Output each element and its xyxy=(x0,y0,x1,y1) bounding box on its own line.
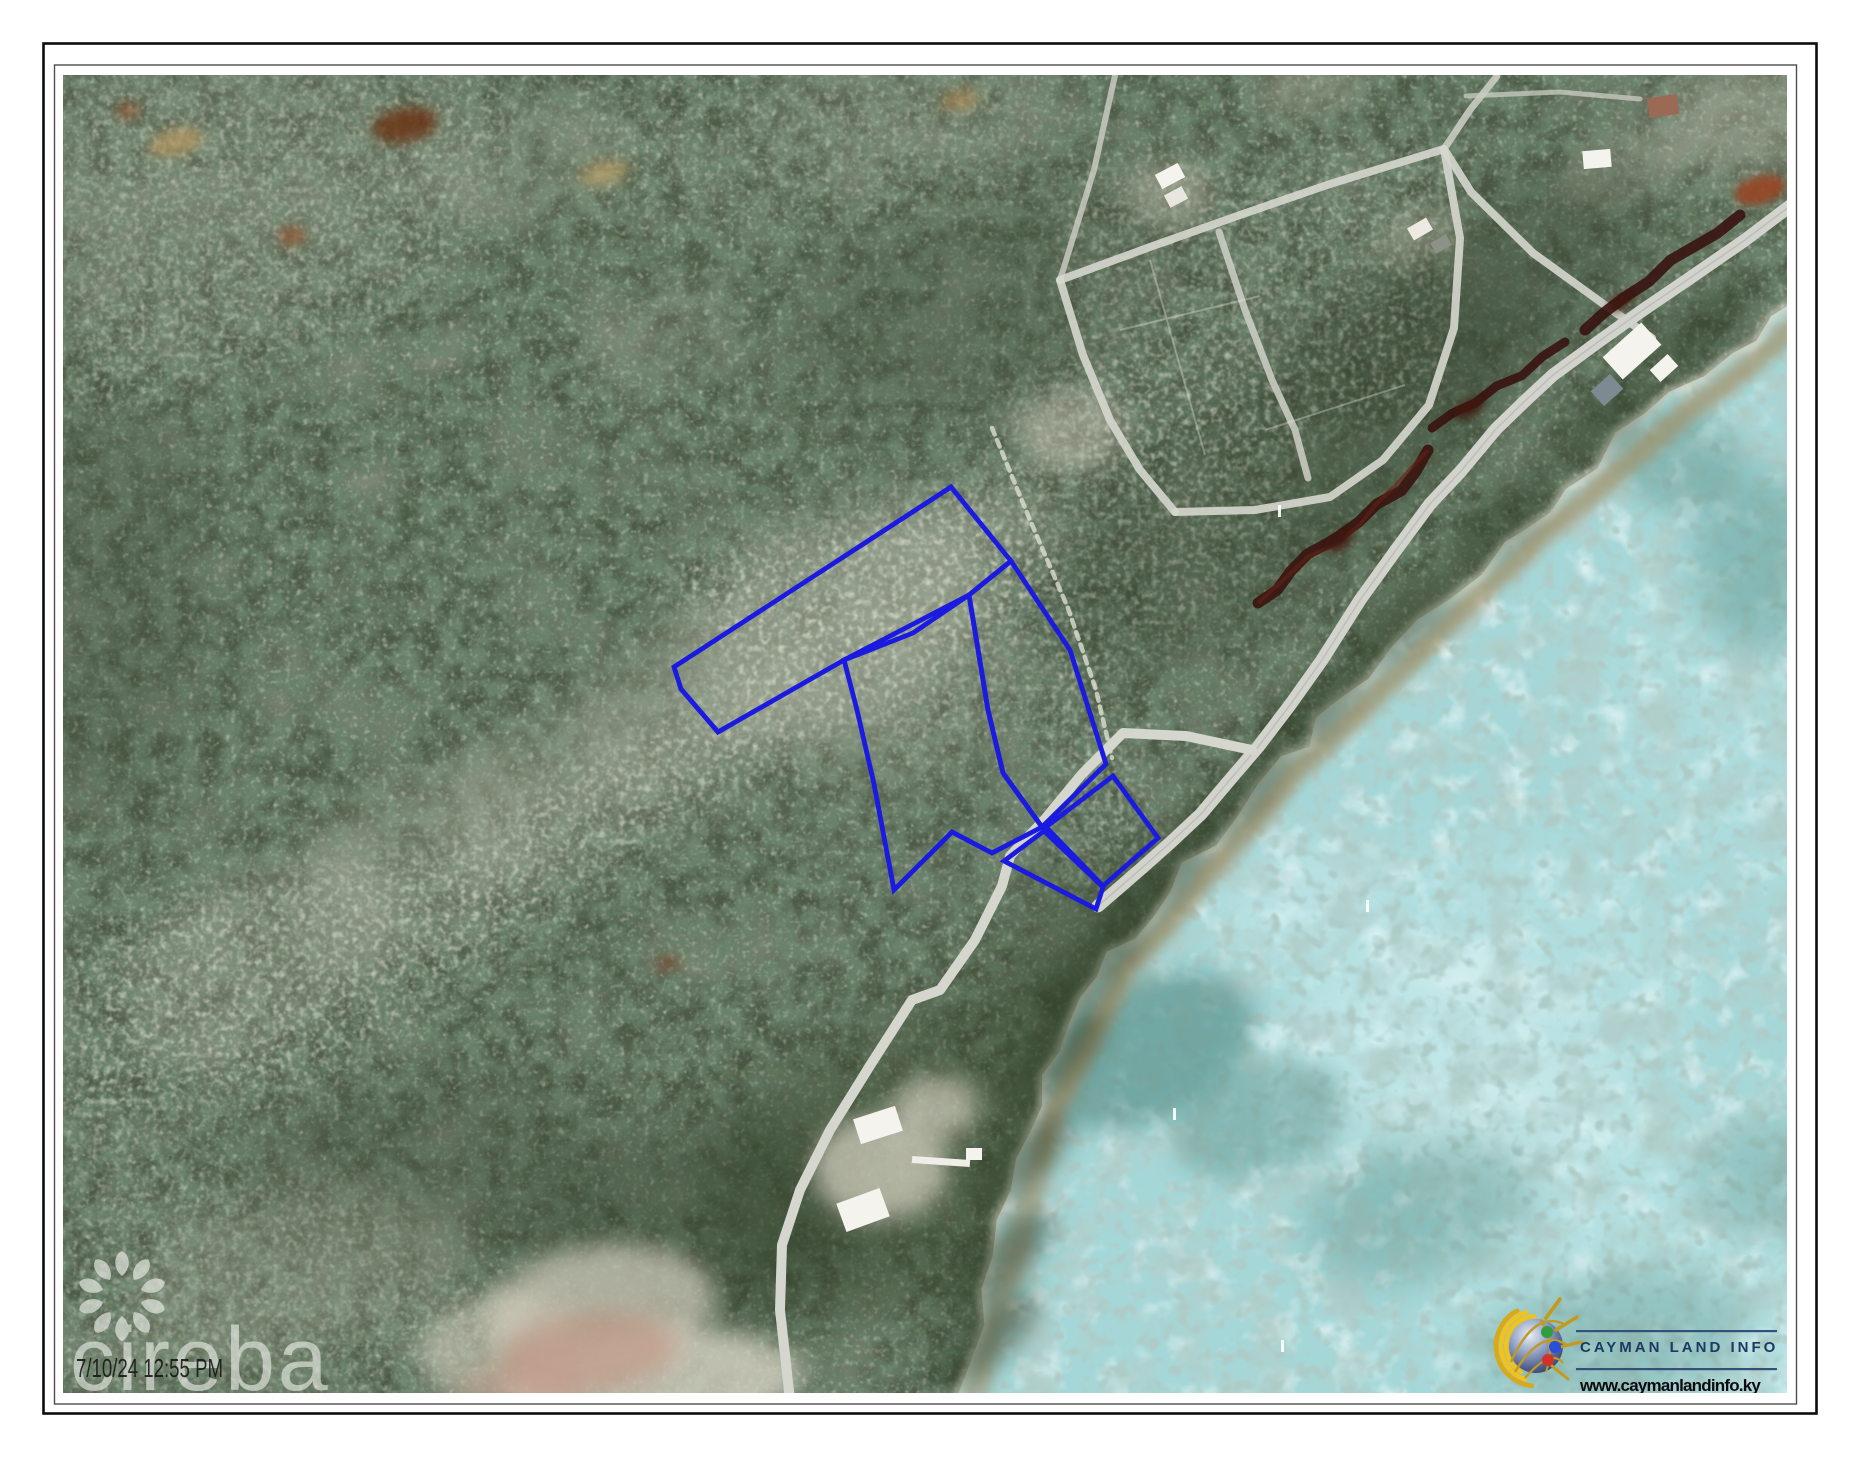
svg-text:www.caymanlandinfo.ky: www.caymanlandinfo.ky xyxy=(1579,1376,1761,1395)
svg-text:7/10/24 12:55 PM: 7/10/24 12:55 PM xyxy=(76,1353,223,1383)
svg-text:CAYMAN LAND INFO: CAYMAN LAND INFO xyxy=(1580,1339,1778,1356)
